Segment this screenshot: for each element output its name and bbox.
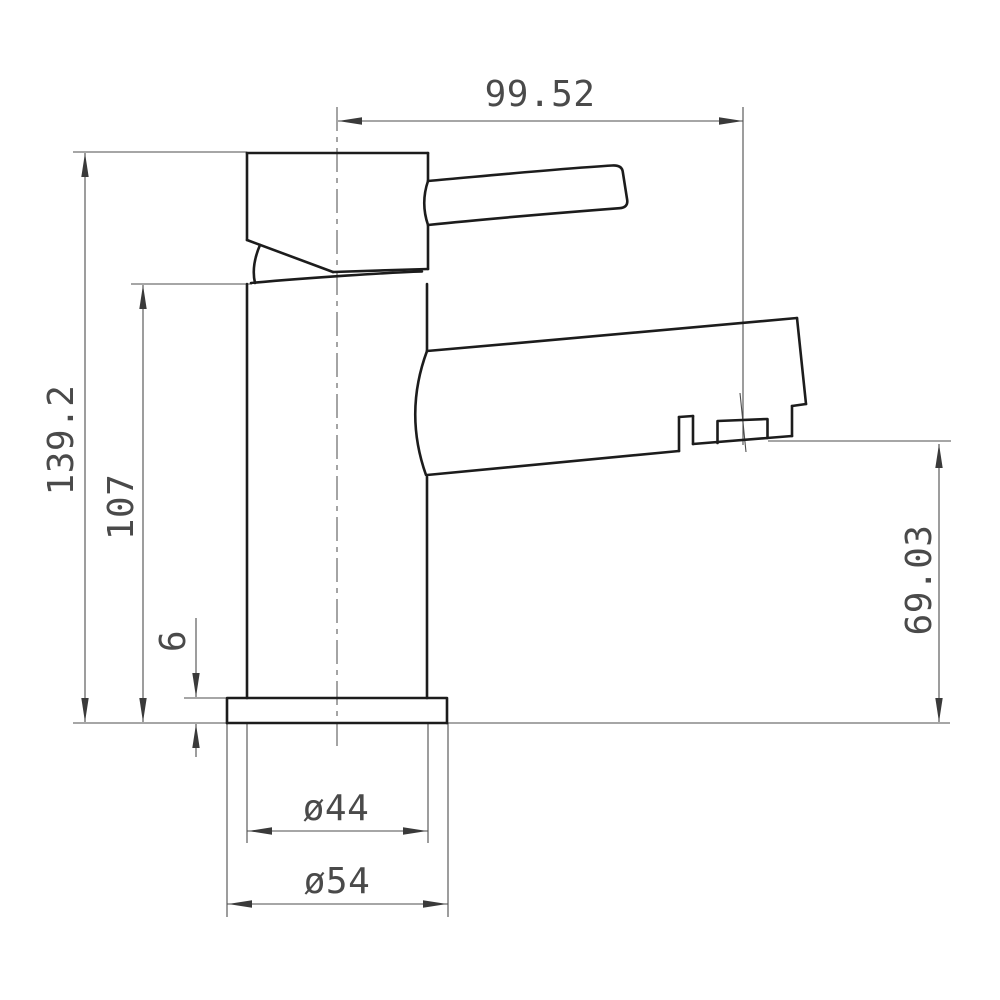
overall-height-label: 139.2 <box>41 385 82 496</box>
base-thickness-label: 6 <box>153 630 194 652</box>
faucet-dimension-drawing: 99.52 139.2 107 6 69.03 ø44 ø54 <box>0 0 1000 1000</box>
drawing-background <box>0 0 1000 1000</box>
body-diameter-label: ø44 <box>303 788 370 829</box>
outlet-height-label: 69.03 <box>899 525 940 636</box>
base-diameter-label: ø54 <box>304 861 371 902</box>
spout-reach-label: 99.52 <box>485 74 596 115</box>
technical-drawing-page: 99.52 139.2 107 6 69.03 ø44 ø54 <box>0 0 1000 1000</box>
body-height-label: 107 <box>101 474 142 541</box>
spout-underside-step <box>679 416 693 417</box>
